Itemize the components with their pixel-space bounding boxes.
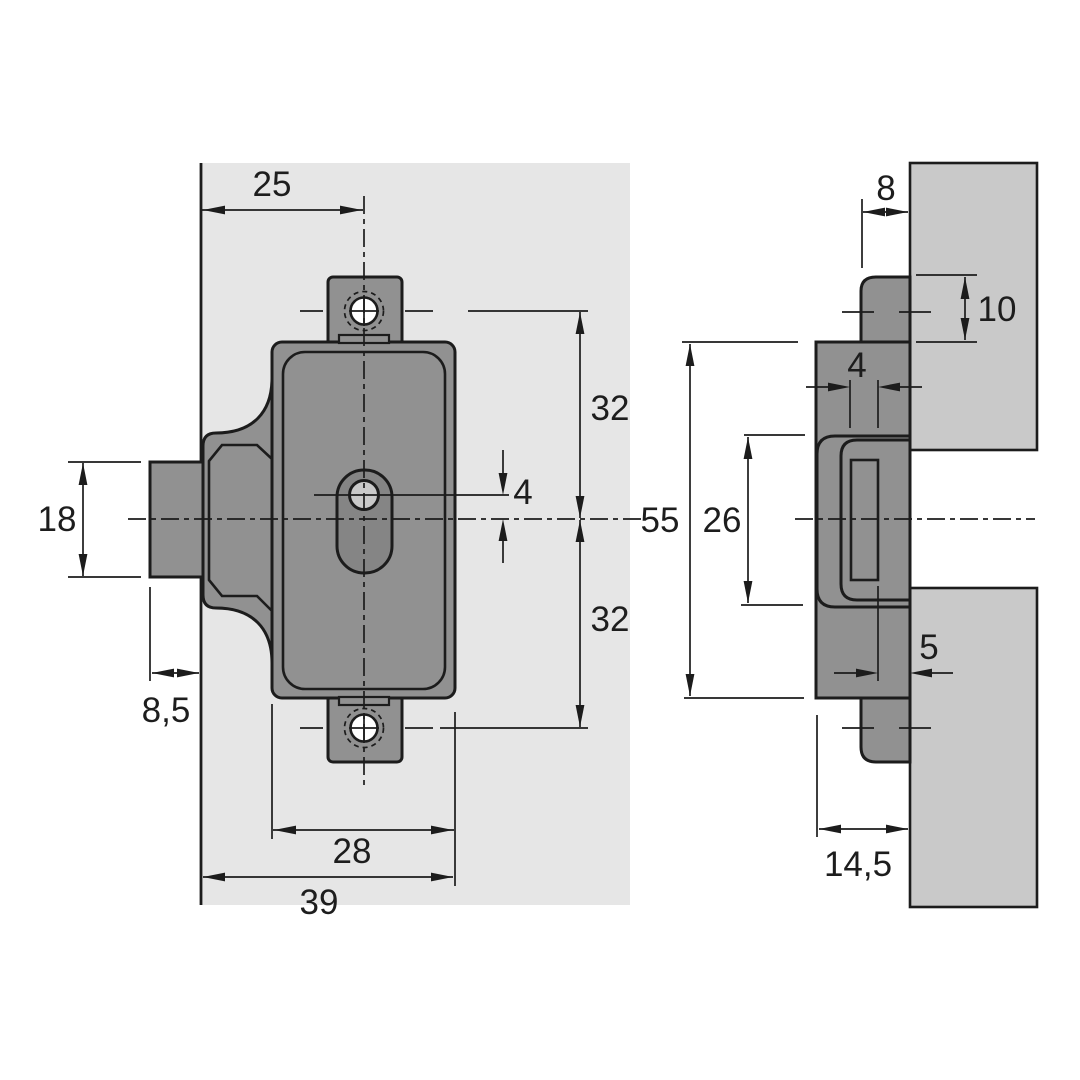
dim-label-14-5: 14,5 — [824, 845, 892, 884]
side-top-screw-tab — [861, 277, 910, 342]
dim-label-18: 18 — [38, 500, 77, 539]
dimension-18: 18 — [38, 462, 141, 577]
dimension-8-5: 8,5 — [142, 587, 199, 730]
dim-label-25: 25 — [253, 165, 292, 204]
dim-label-55: 55 — [641, 501, 680, 540]
dim-label-28: 28 — [333, 832, 372, 871]
side-view: 8 10 4 55 — [641, 163, 1037, 907]
dimension-26: 26 — [703, 435, 805, 605]
side-lock-body — [816, 342, 910, 698]
dim-label-32-top: 32 — [591, 389, 630, 428]
technical-drawing-page: 25 32 32 4 — [0, 0, 1080, 1080]
side-bottom-screw-tab — [861, 698, 910, 762]
dim-label-26: 26 — [703, 501, 742, 540]
front-view: 25 32 32 4 — [38, 163, 641, 922]
dim-label-4-front: 4 — [513, 473, 532, 512]
dim-label-10: 10 — [978, 290, 1017, 329]
side-door-panel-upper — [910, 163, 1037, 450]
lock-dimension-drawing: 25 32 32 4 — [0, 0, 1080, 1080]
dim-label-4-side: 4 — [847, 346, 866, 385]
dim-label-5: 5 — [919, 628, 938, 667]
dim-label-32-bottom: 32 — [591, 600, 630, 639]
dim-label-8-5: 8,5 — [142, 691, 191, 730]
dim-label-8: 8 — [876, 169, 895, 208]
dimension-8: 8 — [862, 169, 908, 268]
dim-label-39: 39 — [300, 883, 339, 922]
